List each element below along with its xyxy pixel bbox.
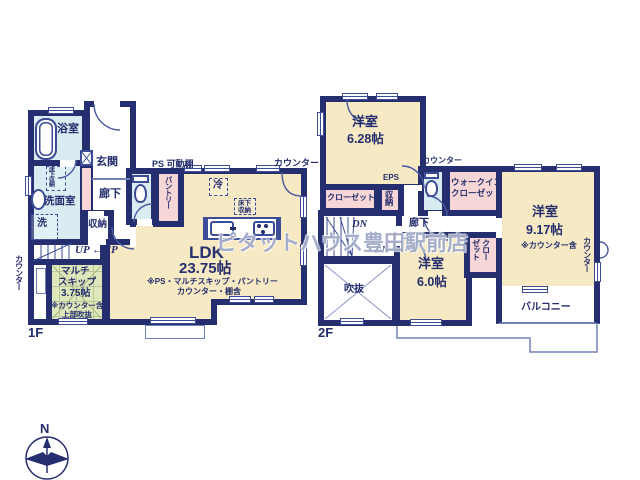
room-label-entrance: 玄関 [96,157,118,169]
window [254,296,274,303]
window [300,196,307,218]
room-label-60: 洋室 [418,257,444,271]
window [522,286,548,293]
note-multiskip-2: 上部吹抜 [62,311,92,319]
label-multiskip-1: マルチ [61,267,90,277]
floorplan-canvas: 浴室 玄関 廊下 床下収納 洗面室 洗 収納 パントリー PS 可動棚 冷 床下… [0,0,640,480]
room-label-storage-1f: 収納 [88,220,107,230]
door-opening [130,227,136,247]
size-label-multiskip: 3.75帖 [61,289,90,300]
label-eps: EPS [383,174,399,183]
balcony-door [594,262,601,282]
window [48,107,74,114]
window [342,93,368,100]
toilet-tank-2f-icon [424,172,439,179]
note-ldk-1: ※PS・マルチスキップ・パントリー [147,278,278,287]
note-917: ※カウンター含 [521,242,577,251]
room-label-void: 吹抜 [344,285,364,296]
terrace-outline [145,325,205,339]
compass-north-label: N [40,422,49,436]
label-underfloor-storage: 床下収納 [47,166,53,186]
window [317,112,324,136]
door-opening [404,185,422,191]
sliding-window [150,317,196,324]
size-label-60: 6.0帖 [417,276,447,290]
room-label-917: 洋室 [532,205,558,219]
window [410,319,442,326]
bathtub-icon [35,118,57,160]
label-multiskip-2: スキップ [58,278,96,288]
watermark-text: ピタットハウス豊田駅前店 [216,227,468,257]
label-laundry: 洗 [37,219,47,230]
door-opening [137,219,152,226]
label-storage-2f: 収納 [384,190,393,205]
label-fridge: 冷 [213,181,223,192]
window [25,176,32,196]
size-label-628: 6.28帖 [347,133,384,147]
label-ps-shelf: PS 可動棚 [152,160,194,170]
door-opening [428,211,442,217]
eaves-outline [397,324,597,352]
label-counter-top-right: カウンター [274,159,319,169]
door-opening [496,218,502,238]
shoe-cabinet-icon [80,166,93,212]
compass-icon [25,437,69,479]
label-closet-60-col2: ゼット [471,239,480,260]
window [376,93,398,100]
room-label-balcony: バルコニー [521,303,571,314]
room-label-bath: 浴室 [57,124,79,136]
window [204,165,230,172]
label-counter-right-2f: カウンター [582,237,591,272]
label-closet-60-col1: クロー [481,239,490,260]
label-stairs-up: UP [75,245,90,257]
toilet-bowl-2f-icon [425,180,438,197]
label-wic-1: ウォークイン [451,178,502,187]
counter-bump-icon [600,242,608,258]
label-closet-628: クローゼット [327,194,375,203]
window [514,164,542,171]
room-label-628: 洋室 [352,115,378,129]
label-kitchen-underfloor-1: 床下 [238,200,251,207]
window [229,296,251,303]
room-label-pantry: パントリー [164,176,172,209]
size-label-ldk: 23.75帖 [179,261,232,277]
label-counter-toilet-2f: カウンター [422,157,462,166]
label-kitchen-underfloor-2: 収納 [238,207,251,214]
front-door-opening [94,100,120,108]
door-opening [60,160,76,167]
floor-label-1f: 1F [28,326,43,340]
floor-label-2f: 2F [318,326,333,340]
shoebox-icon [80,150,93,166]
label-counter-left: カウンター [14,255,23,290]
label-stairs-up-arrow: ←UP [92,245,118,257]
door-opening [88,211,104,216]
window [556,164,582,171]
note-ldk-2: カウンター・棚含 [177,288,241,297]
toilet-tank-1f-icon [132,175,149,183]
label-wic-2: クローゼット [451,189,502,198]
toilet-bowl-1f-icon [134,184,147,203]
size-label-917: 9.17帖 [526,224,563,238]
entrance-step-line [92,178,130,180]
window [340,318,364,325]
note-multiskip-1: ※カウンター含 [51,302,103,310]
room-label-hallway-1f: 廊下 [99,189,121,201]
counter-shape-left [36,268,46,294]
room-label-washroom: 洗面室 [44,196,76,207]
